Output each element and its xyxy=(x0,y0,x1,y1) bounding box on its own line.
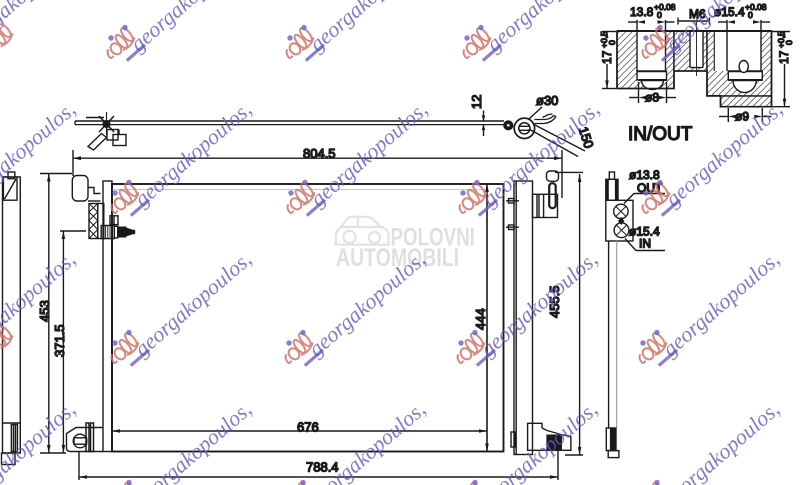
svg-text:0: 0 xyxy=(784,40,794,45)
svg-text:804.5: 804.5 xyxy=(303,146,336,161)
svg-text:IN/OUT: IN/OUT xyxy=(628,124,693,145)
svg-text:17: 17 xyxy=(600,50,614,64)
svg-text:12: 12 xyxy=(469,95,484,109)
svg-text:0: 0 xyxy=(748,10,753,20)
svg-text:ø30: ø30 xyxy=(536,93,558,108)
svg-text:0: 0 xyxy=(657,10,662,20)
svg-text:ø8: ø8 xyxy=(645,91,659,105)
svg-text:IN: IN xyxy=(639,237,651,251)
svg-text:17: 17 xyxy=(777,50,791,64)
svg-text:444: 444 xyxy=(473,308,488,330)
svg-text:371.5: 371.5 xyxy=(52,324,67,357)
svg-text:13.8: 13.8 xyxy=(630,5,654,19)
svg-text:453: 453 xyxy=(37,300,52,322)
svg-text:ø13.8: ø13.8 xyxy=(629,168,660,182)
svg-text:676: 676 xyxy=(297,420,319,435)
svg-text:0: 0 xyxy=(607,40,617,45)
